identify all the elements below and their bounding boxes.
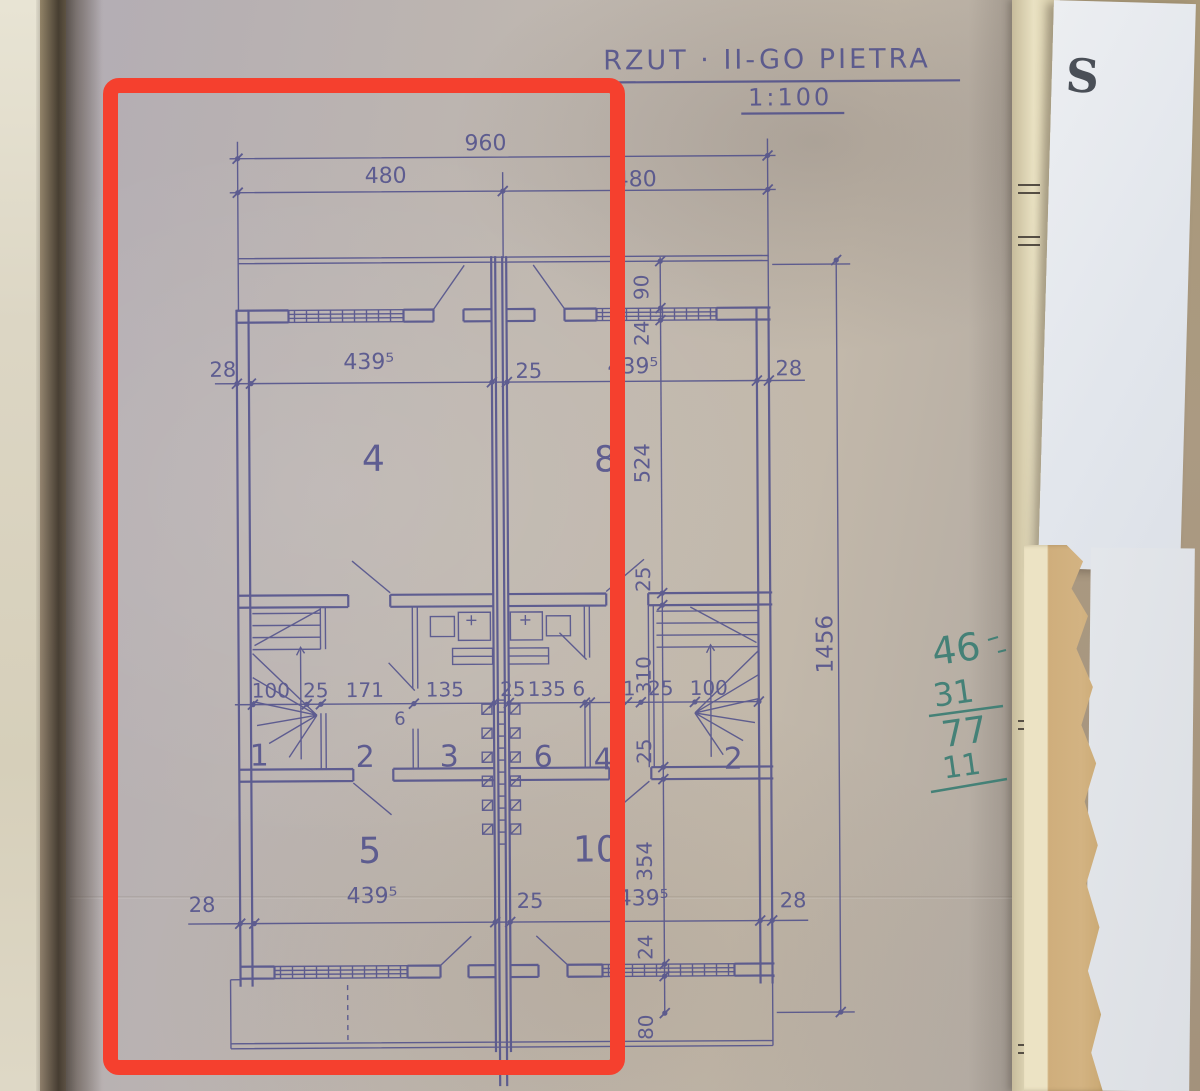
corner-letter: S — [1064, 48, 1101, 104]
dim-b4: 439⁵ — [618, 886, 669, 911]
left-page-edge — [0, 0, 40, 1091]
dim-c8: 24 — [633, 934, 657, 960]
binding-mark — [1018, 236, 1040, 246]
handwritten-11: 11 — [940, 747, 983, 787]
title-block: RZUT · II-GO PIETRA 1:100 — [573, 43, 960, 114]
dim-c9: 80 — [634, 1014, 658, 1040]
handwritten-46: 46 — [929, 624, 983, 674]
room-right-stair: 2 — [724, 742, 743, 777]
white-sheet: S — [1038, 0, 1196, 572]
handwritten-31: 31 — [931, 671, 977, 714]
dim-c6: 25 — [632, 738, 656, 764]
dim-u5: 28 — [775, 356, 802, 380]
dim-c4: 25 — [631, 566, 655, 592]
dim-c2: 24 — [630, 320, 654, 346]
dim-c5: 310 — [632, 656, 656, 694]
drawing-title: RZUT · II-GO PIETRA — [603, 43, 931, 76]
handwritten-notes: 46 31 77 11 — [929, 624, 1007, 792]
dim-overall-height-label: 1456 — [812, 615, 838, 674]
lower-white-sheet — [1085, 547, 1195, 1091]
dim-c1: 90 — [629, 274, 653, 300]
annotation-rectangle — [103, 78, 625, 1075]
binding-mark — [1018, 184, 1040, 194]
title-underline — [573, 80, 960, 82]
dim-b5: 28 — [780, 888, 807, 912]
dim-m10: 100 — [690, 676, 728, 700]
dim-c3: 524 — [630, 443, 654, 483]
dim-c7: 354 — [633, 841, 657, 881]
scale-underline — [741, 113, 844, 114]
drawing-scale: 1:100 — [748, 83, 832, 112]
left-page-shadow — [36, 0, 102, 1091]
scanned-blueprint-page: RZUT · II-GO PIETRA 1:100 960 480 480 — [0, 0, 1200, 1091]
